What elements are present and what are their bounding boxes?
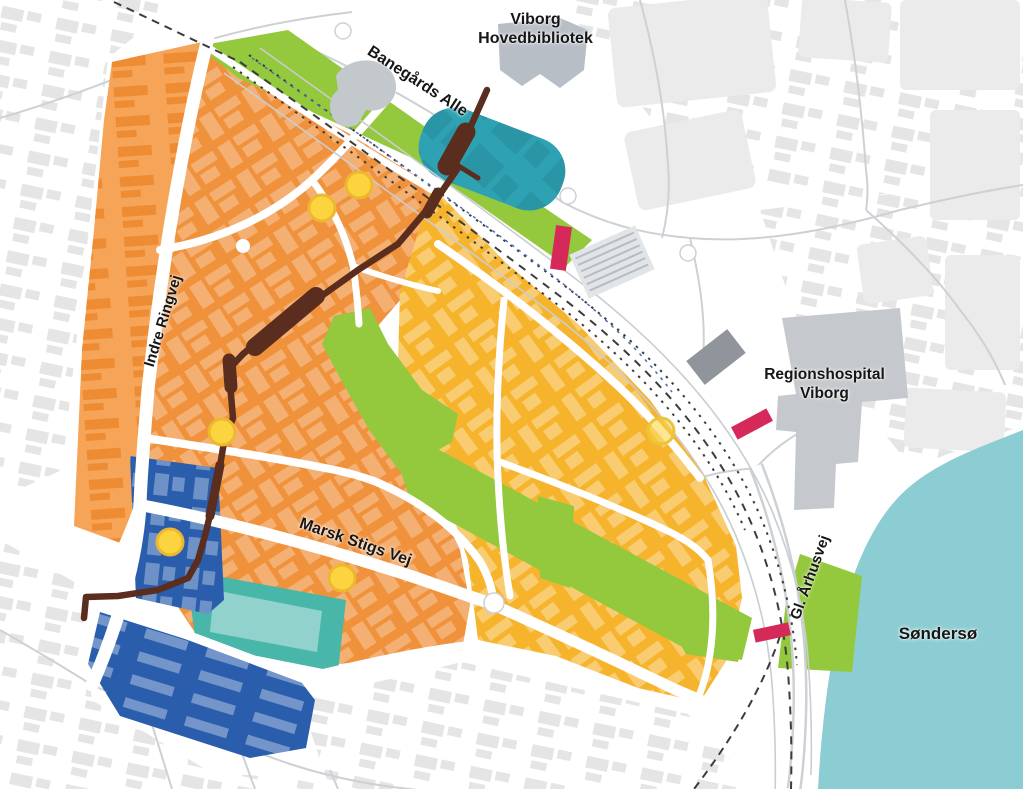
label-library-line2: Hovedbibliotek xyxy=(448,29,623,48)
site-dot xyxy=(648,418,674,444)
site-dot xyxy=(329,565,355,591)
dark-building xyxy=(686,329,745,385)
city-map: Viborg Hovedbibliotek Banegårds Alle Ind… xyxy=(0,0,1023,789)
site-dot xyxy=(346,172,372,198)
crossing-marker xyxy=(731,408,773,439)
green-finger xyxy=(538,496,574,588)
label-library-line1: Viborg xyxy=(448,10,623,29)
site-dot xyxy=(309,195,335,221)
site-dot xyxy=(209,419,235,445)
label-regionshospital-line1: Regionshospital xyxy=(742,366,907,385)
label-sondersoe: Søndersø xyxy=(868,624,1008,644)
label-library: Viborg Hovedbibliotek xyxy=(448,10,623,48)
label-regionshospital: Regionshospital Viborg xyxy=(742,366,907,403)
label-regionshospital-line2: Viborg xyxy=(742,385,907,404)
site-dot xyxy=(157,529,183,555)
